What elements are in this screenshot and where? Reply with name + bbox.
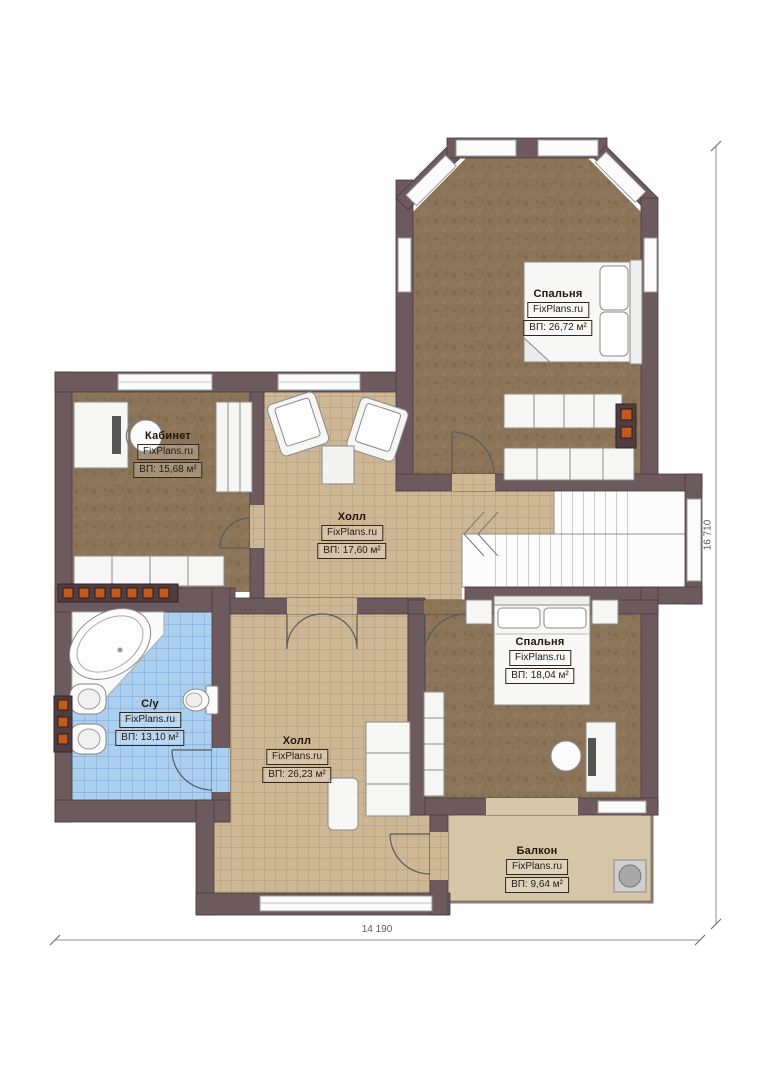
room-name: Спальня <box>523 288 592 300</box>
bathtub-drain <box>118 648 123 653</box>
room-area: ВП: 17,60 м² <box>317 543 386 559</box>
room-area: ВП: 26,23 м² <box>262 767 331 783</box>
balcony-drain-icon <box>619 865 641 887</box>
hall-cabinet <box>328 778 358 830</box>
monitor-icon <box>112 416 121 454</box>
room-name: Холл <box>262 735 331 747</box>
room-label-bedroom-top: Спальня FixPlans.ru ВП: 26,72 м² <box>523 288 592 336</box>
window <box>687 499 701 581</box>
floor-plan: Спальня FixPlans.ru ВП: 26,72 м² Кабинет… <box>0 0 763 1080</box>
watermark-fixplans: FixPlans.ru <box>509 650 571 666</box>
floor-hall-upper-ext1 <box>396 491 554 539</box>
bed-headboard <box>494 596 590 605</box>
window <box>644 238 657 292</box>
room-label-hall-lower: Холл FixPlans.ru ВП: 26,23 м² <box>262 735 331 783</box>
watermark-fixplans: FixPlans.ru <box>321 525 383 541</box>
sink-icon <box>70 684 106 714</box>
watermark-fixplans: FixPlans.ru <box>506 859 568 875</box>
side-table-icon <box>322 446 354 484</box>
nightstand-icon <box>592 600 618 624</box>
pillow-icon <box>544 608 586 628</box>
watermark-fixplans: FixPlans.ru <box>527 302 589 318</box>
sink-icon <box>70 724 106 754</box>
room-label-bedroom-bottom: Спальня FixPlans.ru ВП: 18,04 м² <box>505 636 574 684</box>
pillow-icon <box>498 608 540 628</box>
room-area: ВП: 15,68 м² <box>133 462 202 478</box>
floor-hall-upper-ext2 <box>396 537 462 602</box>
dimension-width: 14 190 <box>362 924 393 935</box>
radiator-icon <box>58 584 178 602</box>
stairs-upper-flight <box>554 490 631 534</box>
nightstand-icon <box>466 600 492 624</box>
room-label-hall-upper: Холл FixPlans.ru ВП: 17,60 м² <box>317 511 386 559</box>
room-area: ВП: 9,64 м² <box>505 877 569 893</box>
wall <box>408 598 425 815</box>
room-name: Балкон <box>505 845 569 857</box>
room-area: ВП: 26,72 м² <box>523 320 592 336</box>
watermark-fixplans: FixPlans.ru <box>266 749 328 765</box>
window-bay <box>538 140 598 156</box>
office-wardrobe <box>216 402 252 492</box>
watermark-fixplans: FixPlans.ru <box>137 444 199 460</box>
radiator-icon <box>616 404 636 448</box>
wardrobe-row <box>504 448 634 480</box>
room-label-bathroom: С/у FixPlans.ru ВП: 13,10 м² <box>115 698 184 746</box>
bed-headboard <box>630 260 642 364</box>
room-area: ВП: 18,04 м² <box>505 668 574 684</box>
wall <box>641 587 658 815</box>
stairs-lower-flight <box>486 534 631 586</box>
office-cabinets <box>74 556 224 586</box>
window-bay <box>456 140 516 156</box>
wardrobe-row <box>504 394 622 428</box>
office-chair-icon <box>551 741 581 771</box>
room-name: Холл <box>317 511 386 523</box>
radiator-icon <box>54 696 72 752</box>
room-label-office: Кабинет FixPlans.ru ВП: 15,68 м² <box>133 430 202 478</box>
room-name: Спальня <box>505 636 574 648</box>
room-area: ВП: 13,10 м² <box>115 730 184 746</box>
window <box>598 801 646 813</box>
watermark-fixplans: FixPlans.ru <box>119 712 181 728</box>
monitor-icon <box>588 738 596 776</box>
dimension-height: 16 710 <box>703 520 714 551</box>
room-name: С/у <box>115 698 184 710</box>
room-name: Кабинет <box>133 430 202 442</box>
room-label-balcony: Балкон FixPlans.ru ВП: 9,64 м² <box>505 845 569 893</box>
hall-wardrobe <box>366 722 410 816</box>
pillow-icon <box>600 266 628 310</box>
pillow-icon <box>600 312 628 356</box>
window <box>398 238 411 292</box>
